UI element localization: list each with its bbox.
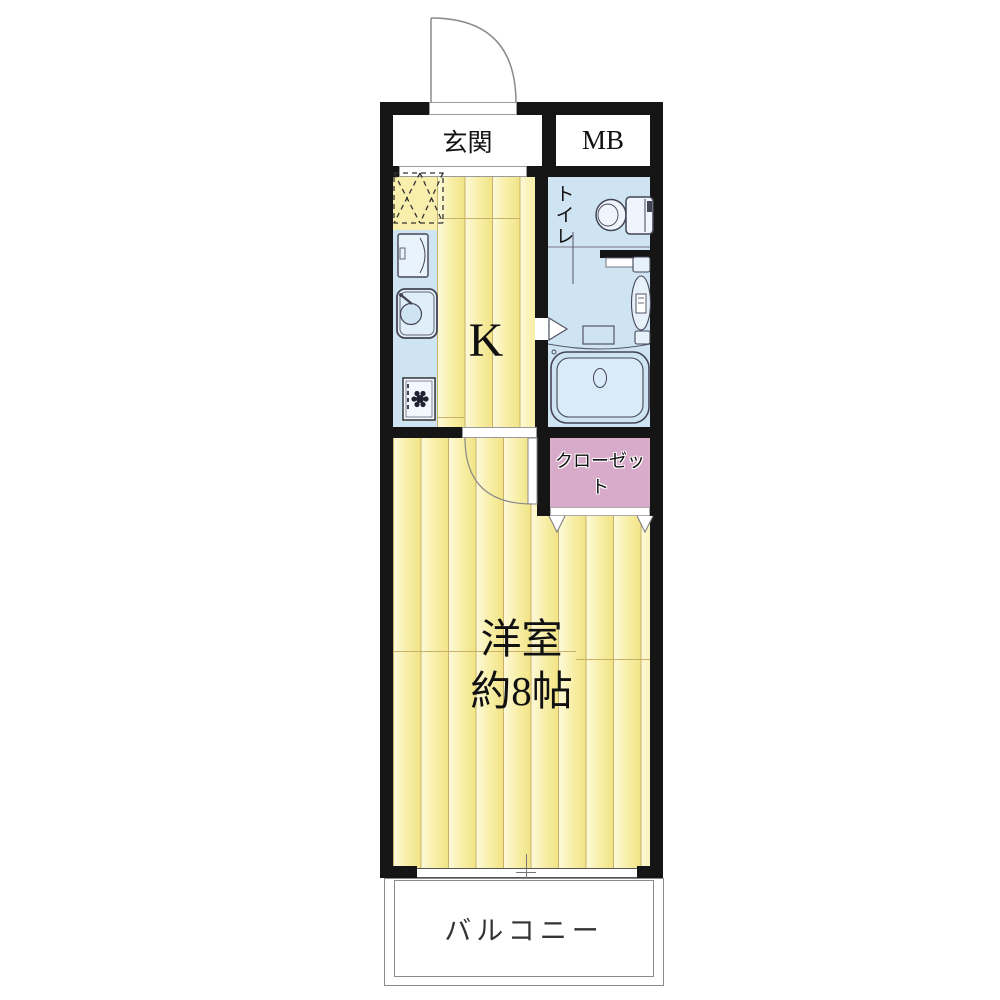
main-room-size: 約8帖 xyxy=(470,665,573,717)
main-room-name: 洋室 xyxy=(481,613,563,665)
room-door-icon xyxy=(465,438,537,504)
kitchen-label: K xyxy=(437,303,535,378)
bathtub-icon xyxy=(551,350,649,423)
washer-icon xyxy=(398,234,428,277)
bath-floor-curve xyxy=(548,344,650,349)
bath-door-icon xyxy=(549,318,567,340)
balcony-label: バルコニー xyxy=(394,908,654,948)
floor-plan: 玄関 MB K トイレ クローゼット 洋室 約8帖 バルコニー xyxy=(0,0,1000,1000)
bath-stool-icon xyxy=(583,326,614,344)
entry-door-icon xyxy=(431,18,516,103)
toilet-icon xyxy=(596,197,653,234)
laundry-space-icon xyxy=(394,173,443,223)
closet-door-icon xyxy=(549,516,653,532)
sink-icon xyxy=(397,289,437,338)
main-room-label: 洋室 約8帖 xyxy=(393,605,650,725)
bath-vanity-icon xyxy=(632,257,651,344)
stove-icon xyxy=(403,378,435,420)
closet-label: クローゼット xyxy=(548,438,652,507)
genkan-label: 玄関 xyxy=(393,115,542,166)
meter-box-label: MB xyxy=(556,115,650,166)
toilet-label: トイレ xyxy=(550,180,576,250)
